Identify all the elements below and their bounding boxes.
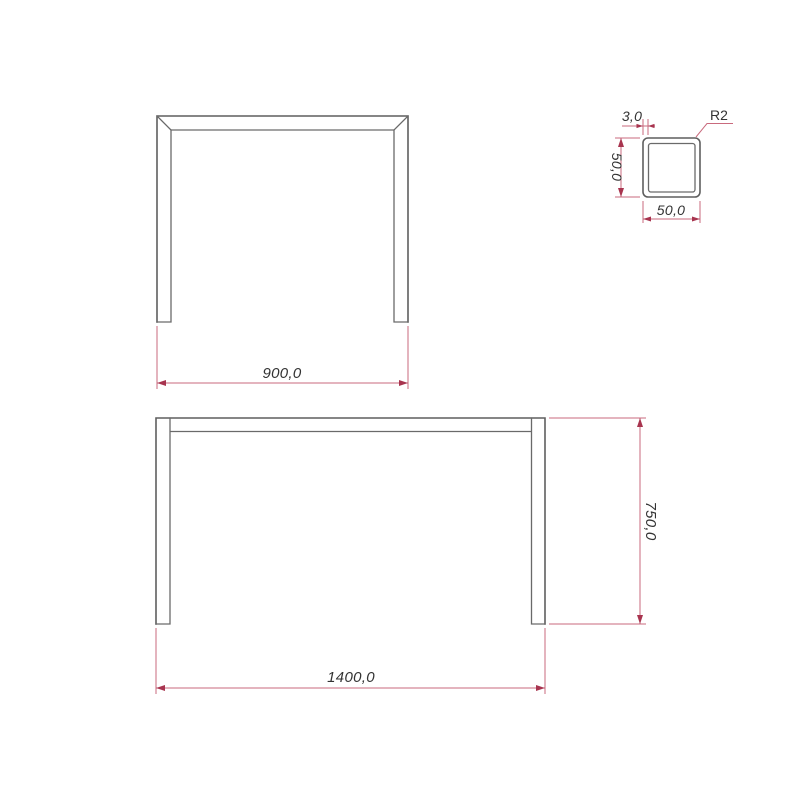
wall-thickness-dimension: 3,0 [622, 108, 655, 135]
dimension-value: 900,0 [262, 365, 301, 382]
technical-drawing-canvas: 900,0 3,0 R2 [0, 0, 800, 800]
dim-arrow-left-icon [643, 217, 651, 222]
dim-arrow-right-icon [692, 217, 700, 222]
dim-arrow-up-icon [637, 418, 643, 427]
top-view-width-dimension: 900,0 [157, 326, 408, 389]
section-outer-profile [643, 138, 700, 197]
top-view-inner-contour [157, 130, 408, 322]
dim-arrow-left-icon [157, 380, 166, 386]
radius-label: R2 [710, 107, 728, 123]
extension-ticks [643, 119, 648, 135]
dimension-value: 50,0 [609, 153, 625, 181]
dim-arrow-down-icon [618, 188, 624, 197]
section-width-dimension: 50,0 [643, 201, 700, 223]
dimension-value: 750,0 [642, 501, 659, 540]
front-view-width-dimension: 1400,0 [156, 628, 545, 694]
table-frame-drawing: 900,0 3,0 R2 [0, 0, 800, 800]
frame-front-view: 1400,0 750,0 [156, 418, 659, 694]
dimension-value: 50,0 [657, 202, 685, 218]
leader-line [696, 124, 733, 138]
extension-lines [549, 418, 646, 624]
dim-arrow-right-icon [399, 380, 408, 386]
top-view-mitre-lines [157, 116, 408, 130]
front-view-inner-contour [156, 418, 545, 624]
dim-arrow-left-icon [648, 124, 655, 128]
front-view-height-dimension: 750,0 [549, 418, 659, 624]
section-inner-profile [649, 144, 696, 193]
section-height-dimension: 50,0 [609, 138, 640, 197]
top-view-outer-contour [157, 116, 408, 322]
corner-radius-callout: R2 [696, 107, 733, 137]
dim-arrow-right-icon [536, 685, 545, 691]
dim-arrow-left-icon [156, 685, 165, 691]
dim-arrow-right-icon [637, 124, 644, 128]
front-view-outer-contour [156, 418, 545, 624]
frame-top-view: 900,0 [157, 116, 408, 389]
dim-arrow-up-icon [618, 138, 624, 147]
dim-arrow-down-icon [637, 615, 643, 624]
tube-section-view: 3,0 R2 50,0 50,0 [609, 107, 733, 223]
dimension-value: 3,0 [622, 108, 642, 124]
dimension-value: 1400,0 [327, 669, 375, 686]
